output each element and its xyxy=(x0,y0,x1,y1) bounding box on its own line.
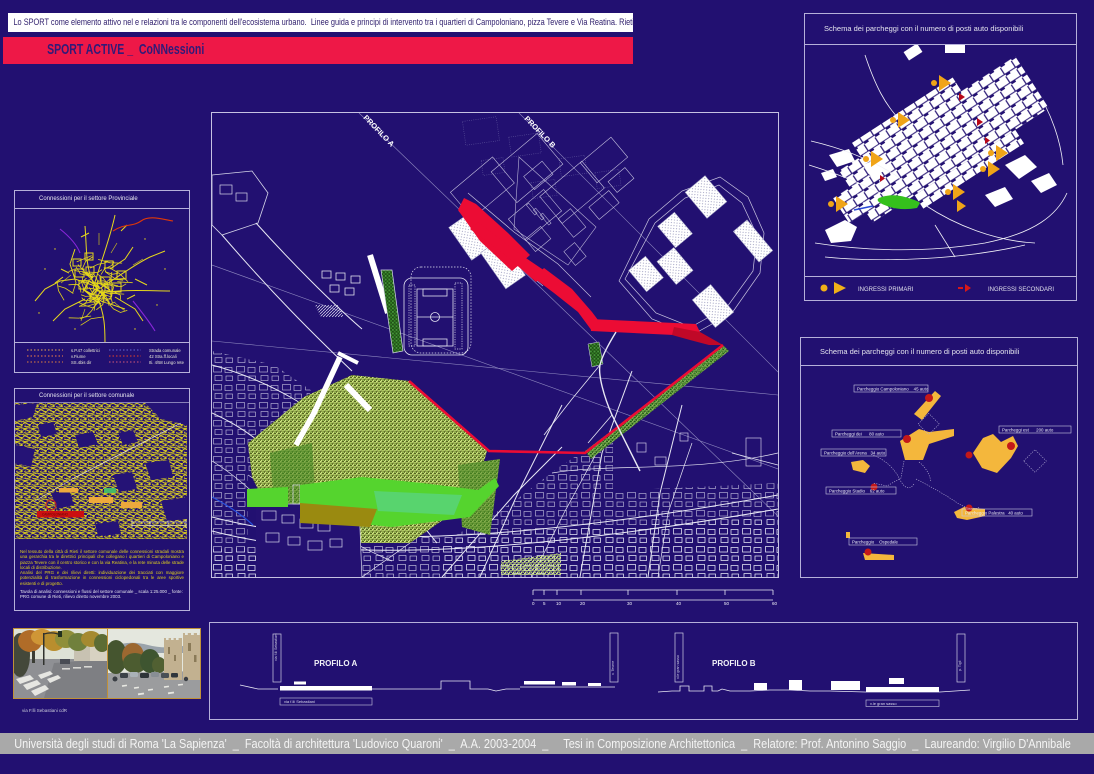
svg-text:10: 10 xyxy=(556,601,562,606)
svg-text:5: 5 xyxy=(543,601,546,606)
svg-text:v.le gran sasso: v.le gran sasso xyxy=(870,701,897,706)
svg-text:v.Fiume: v.Fiume xyxy=(71,354,86,359)
svg-text:via f.lli Sebastiani: via f.lli Sebastiani xyxy=(274,633,278,661)
svg-text:40: 40 xyxy=(676,601,682,606)
svg-text:Iti. 4/58 Lungo rete: Iti. 4/58 Lungo rete xyxy=(149,360,185,365)
svg-text:v. Tevere: v. Tevere xyxy=(611,661,615,675)
svg-text:INGRESSI SECONDARI: INGRESSI SECONDARI xyxy=(988,287,1054,293)
svg-text:Parcheggio Ospedale: Parcheggio Ospedale xyxy=(852,540,898,545)
svg-text:0: 0 xyxy=(532,601,535,606)
svg-text:50: 50 xyxy=(724,601,730,606)
svg-text:30: 30 xyxy=(627,601,633,606)
svg-text:CAMPOLONIANO: CAMPOLONIANO xyxy=(42,513,69,517)
svg-text:via f.lli Sebastiani: via f.lli Sebastiani xyxy=(284,699,315,704)
svg-text:42 Stra.ff.locali: 42 Stra.ff.locali xyxy=(149,354,177,359)
svg-text:Parcheggi est 200 auto: Parcheggi est 200 auto xyxy=(1002,428,1054,433)
svg-text:Parcheggi dei 80 auto: Parcheggi dei 80 auto xyxy=(835,432,884,437)
svg-text:PROFILO B: PROFILO B xyxy=(712,659,756,668)
svg-text:Parcheggio Palestra 40 auto: Parcheggio Palestra 40 auto xyxy=(965,511,1023,516)
svg-text:INGRESSI PRIMARI: INGRESSI PRIMARI xyxy=(858,287,914,293)
svg-text:v.le gran sasso: v.le gran sasso xyxy=(676,655,680,679)
svg-text:Parcheggio Campoloniano 45: Parcheggio Campoloniano 45 auto xyxy=(857,387,929,392)
svg-text:PROFILO A: PROFILO A xyxy=(314,659,357,668)
svg-text:60: 60 xyxy=(772,601,778,606)
svg-text:s.P.47 collettrici: s.P.47 collettrici xyxy=(71,348,100,353)
svg-text:20: 20 xyxy=(580,601,586,606)
svg-text:SS.4bis dir: SS.4bis dir xyxy=(71,360,92,365)
svg-text:Strada comunale: Strada comunale xyxy=(149,348,181,353)
svg-text:p. Tigli: p. Tigli xyxy=(958,660,962,671)
svg-text:Parcheggio Stadio 62 auto: Parcheggio Stadio 62 auto xyxy=(829,489,885,494)
svg-text:Parcheggio dell'Arena 34 aut: Parcheggio dell'Arena 34 auto xyxy=(824,451,886,456)
svg-text:PROFILO A: PROFILO A xyxy=(362,113,397,149)
